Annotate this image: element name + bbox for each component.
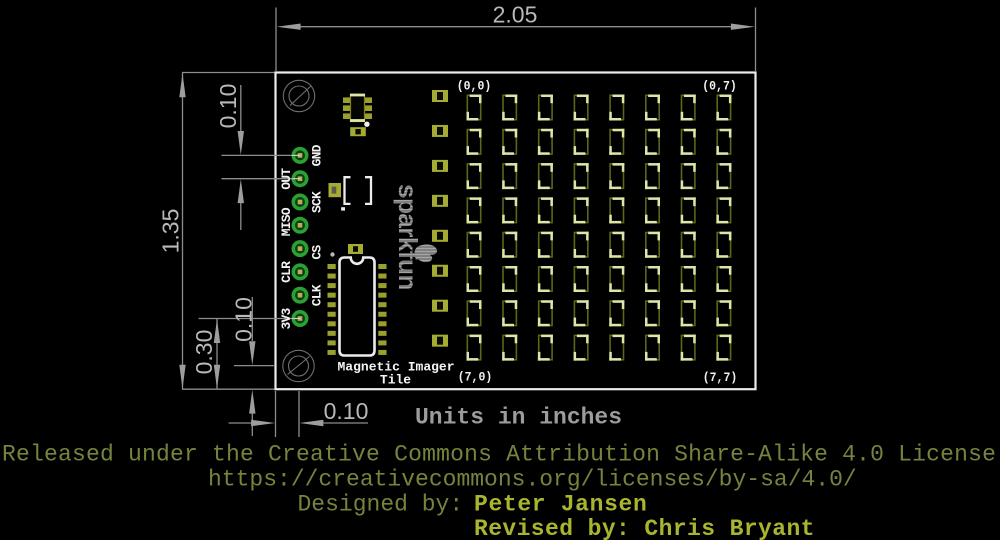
svg-text:0.10: 0.10 [324, 398, 369, 424]
svg-text:Designed by:: Designed by: [298, 492, 464, 518]
svg-text:Revised by: Chris Bryant: Revised by: Chris Bryant [474, 516, 815, 540]
svg-text:3V3: 3V3 [279, 307, 294, 329]
svg-text:2.05: 2.05 [493, 1, 538, 27]
svg-text:Tile: Tile [380, 373, 411, 388]
svg-text:(7,0): (7,0) [458, 370, 492, 385]
svg-text:0.30: 0.30 [191, 330, 217, 375]
svg-text:(0,0): (0,0) [457, 79, 491, 94]
svg-text:(0,7): (0,7) [702, 79, 736, 94]
svg-text:SCK: SCK [310, 191, 325, 213]
svg-text:(7,7): (7,7) [703, 371, 737, 386]
svg-text:CLR: CLR [279, 261, 294, 283]
svg-text:Units in inches: Units in inches [415, 404, 622, 430]
svg-text:Released under the Creative Co: Released under the Creative Commons Attr… [2, 442, 996, 468]
svg-text:0.10: 0.10 [215, 84, 241, 129]
svg-text:0.10: 0.10 [230, 297, 256, 342]
svg-text:GND: GND [310, 144, 325, 166]
svg-text:CS: CS [310, 245, 325, 260]
svg-text:https://creativecommons.org/li: https://creativecommons.org/licenses/by-… [208, 467, 857, 493]
svg-text:MISO: MISO [279, 207, 294, 236]
svg-text:OUT: OUT [279, 168, 294, 190]
svg-text:1.35: 1.35 [158, 209, 184, 254]
svg-text:CLK: CLK [310, 284, 325, 306]
svg-text:Peter Jansen: Peter Jansen [474, 492, 647, 518]
